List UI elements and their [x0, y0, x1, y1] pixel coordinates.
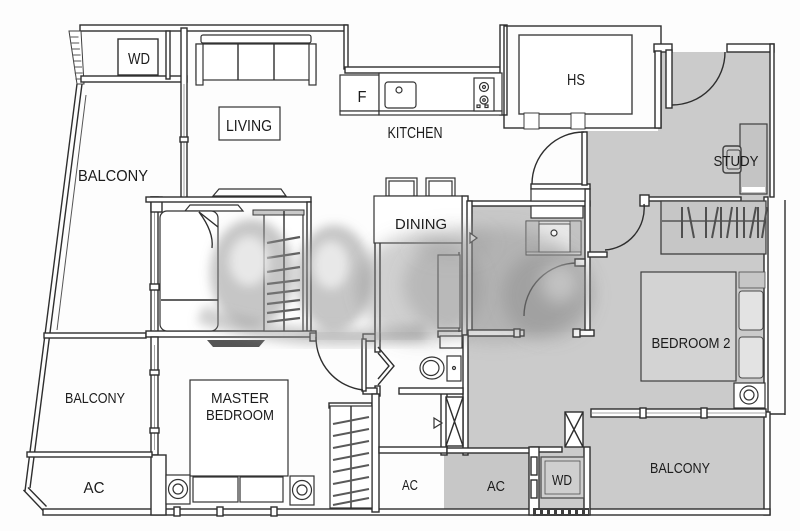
svg-text:KITCHEN: KITCHEN [388, 125, 443, 142]
svg-text:MASTER: MASTER [211, 390, 269, 407]
svg-text:DINING: DINING [395, 216, 447, 233]
svg-text:BALCONY: BALCONY [650, 461, 710, 477]
svg-text:STUDY: STUDY [714, 153, 759, 170]
svg-text:AC: AC [402, 478, 418, 494]
svg-text:BALCONY: BALCONY [65, 390, 125, 407]
svg-text:BALCONY: BALCONY [78, 168, 148, 185]
svg-text:AC: AC [84, 480, 105, 497]
svg-text:WD: WD [128, 51, 150, 68]
svg-text:WD: WD [552, 473, 572, 489]
svg-text:AC: AC [487, 479, 505, 495]
svg-text:BEDROOM: BEDROOM [206, 407, 274, 424]
svg-text:HS: HS [567, 72, 585, 89]
svg-text:LIVING: LIVING [226, 118, 272, 135]
svg-text:BEDROOM 2: BEDROOM 2 [652, 335, 731, 352]
svg-text:F: F [358, 89, 367, 106]
